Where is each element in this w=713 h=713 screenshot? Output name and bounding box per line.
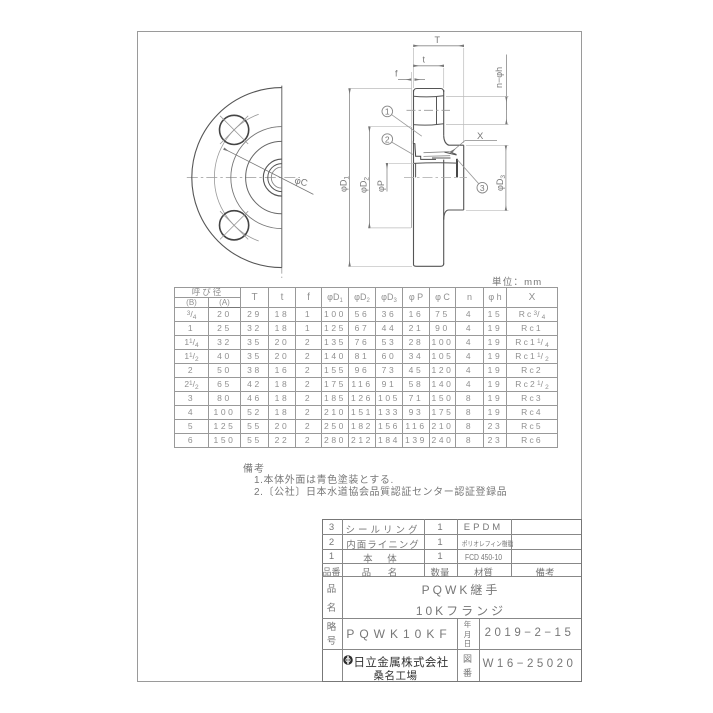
svg-text:t: t bbox=[423, 55, 426, 65]
svg-text:2: 2 bbox=[385, 134, 390, 144]
svg-text:1: 1 bbox=[385, 107, 390, 117]
svg-text:T: T bbox=[435, 35, 441, 45]
svg-text:n−φh: n−φh bbox=[494, 67, 504, 88]
svg-text:φC: φC bbox=[293, 175, 309, 189]
svg-text:3: 3 bbox=[480, 183, 485, 193]
svg-text:φD1: φD1 bbox=[339, 176, 351, 192]
svg-text:φD3: φD3 bbox=[495, 175, 507, 191]
svg-text:φD2: φD2 bbox=[359, 177, 371, 193]
svg-text:f: f bbox=[395, 69, 398, 79]
svg-text:φP: φP bbox=[376, 180, 386, 192]
